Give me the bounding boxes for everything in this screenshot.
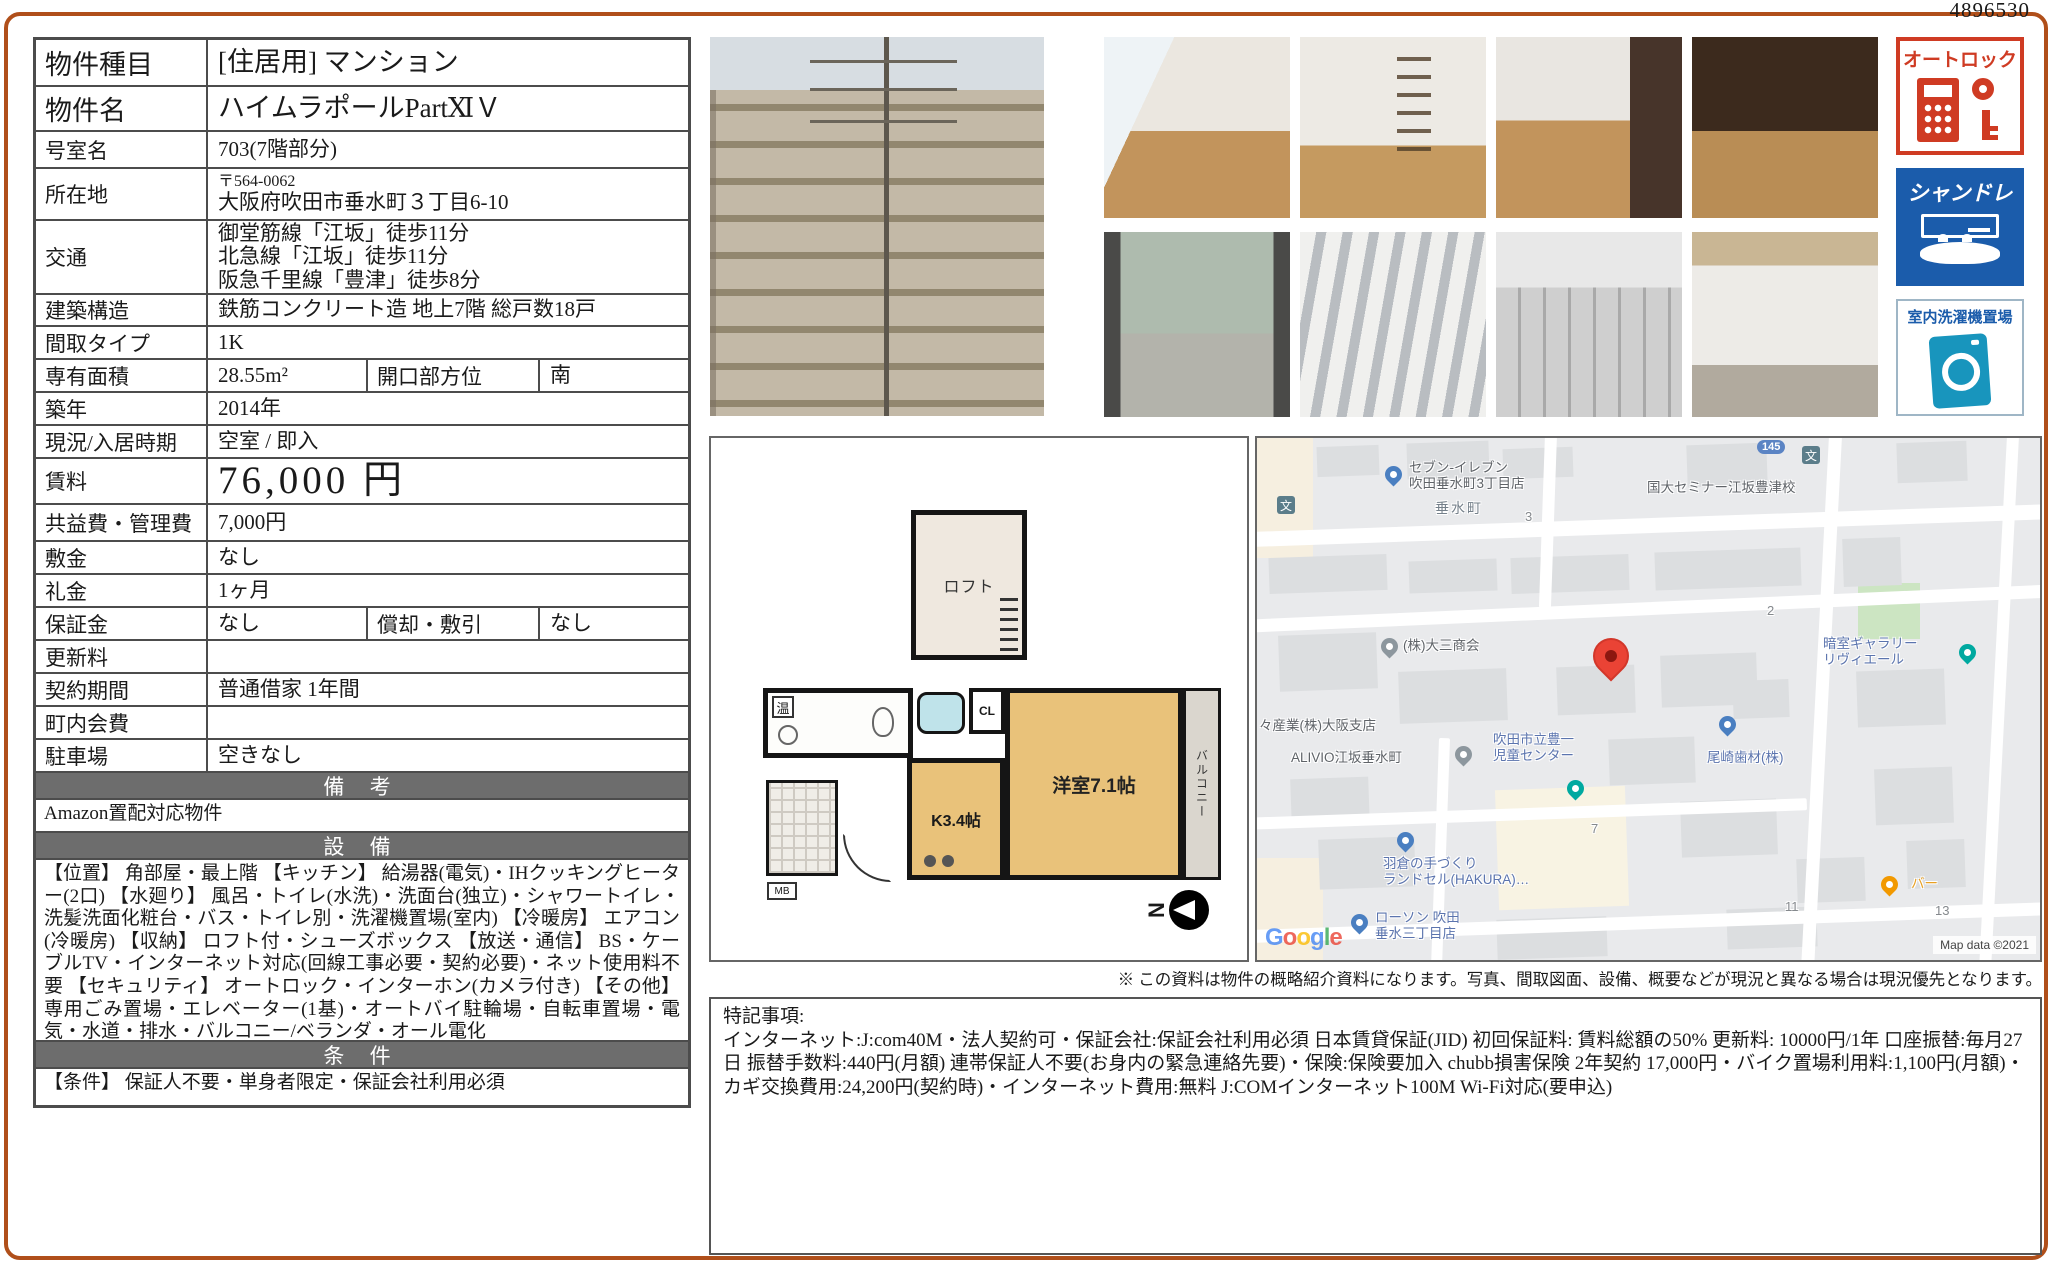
remarks-body: インターネット:J:com40M・法人契約可・保証会社:保証会社利用必須 日本賃… (723, 1029, 2028, 1100)
map-building (1268, 554, 1387, 594)
row-value-2: なし (540, 608, 688, 639)
row-label: 築年 (36, 393, 208, 424)
floorplan-kitchen: K3.4帖 (907, 758, 1005, 880)
map-copyright: Map data ©2021 (1933, 936, 2036, 954)
map-poi-label: 々産業(株)大阪支店 (1259, 718, 1376, 734)
section-body: Amazon置配対応物件 (36, 798, 688, 831)
section-header: 条 件 (36, 1040, 688, 1067)
map-poi-pin (1955, 640, 1979, 664)
map-poi-label: ローソン 吹田 垂水三丁目店 (1375, 910, 1460, 941)
table-row: 賃料76,000 円 (36, 457, 688, 503)
row-value (208, 641, 688, 672)
row-value: なし (208, 608, 368, 639)
row-label: 号室名 (36, 132, 208, 167)
remarks-title: 特記事項: (723, 1005, 2028, 1029)
map-poi-pin (1877, 872, 1901, 896)
map-route-badge: 145 (1757, 440, 1785, 454)
table-row: 交通御堂筋線「江坂」徒歩11分北急線「江坂」徒歩11分阪急千里線「豊津」徒歩8分 (36, 219, 688, 293)
row-label: 賃料 (36, 459, 208, 503)
map-poi-label: バー (1911, 876, 1938, 892)
google-logo: Google (1265, 924, 1342, 952)
table-row: 建築構造鉄筋コンクリート造 地上7階 総戸数18戸 (36, 293, 688, 325)
special-remarks-box: 特記事項: インターネット:J:com40M・法人契約可・保証会社:保証会社利用… (709, 997, 2042, 1255)
washing-machine-icon (1929, 333, 1992, 409)
row-label: 物件種目 (36, 40, 208, 85)
photo-common-corridor (1692, 232, 1878, 417)
section-header: 設 備 (36, 831, 688, 858)
map-building (1510, 554, 1629, 594)
badge-shampoo-dresser-label: シャンドレ (1899, 177, 2021, 207)
floorplan-entrance-door-arc (843, 834, 891, 882)
row-label: 契約期間 (36, 674, 208, 705)
photo-entrance-mailboxes (1496, 232, 1682, 417)
map-poi-label: 2 (1767, 604, 1774, 619)
map-poi-label: 3 (1525, 510, 1532, 525)
photo-interior-kitchen (1692, 37, 1878, 218)
floorplan-balcony: バルコニー (1183, 688, 1221, 880)
property-table: 物件種目[住居用] マンション物件名ハイムラポールPartⅪＶ号室名703(7階… (33, 37, 691, 1108)
row-label: 交通 (36, 221, 208, 293)
badge-autolock-label: オートロック (1900, 45, 2020, 72)
table-row: 築年2014年 (36, 391, 688, 424)
table-row: 礼金1ヶ月 (36, 573, 688, 606)
row-value: 7,000円 (208, 505, 688, 540)
map-building (1408, 558, 1497, 593)
table-row: 現況/入居時期空室 / 即入 (36, 424, 688, 457)
map-building (1732, 679, 1789, 719)
map-poi-label: 7 (1591, 822, 1598, 837)
row-value: 2014年 (208, 393, 688, 424)
table-row: 号室名703(7階部分) (36, 130, 688, 167)
map-disclaimer-note: ※ この資料は物件の概略紹介資料になります。写真、間取図面、設備、概要などが現況… (709, 966, 2042, 990)
map-building (1278, 632, 1378, 691)
map-poi-pin (1377, 634, 1401, 658)
row-value: 普通借家 1年間 (208, 674, 688, 705)
row-label: 専有面積 (36, 360, 208, 391)
row-label: 物件名 (36, 87, 208, 130)
row-value: 703(7階部分) (208, 132, 688, 167)
table-row: 保証金なし償却・敷引なし (36, 606, 688, 639)
table-row: 所在地〒564-0062大阪府吹田市垂水町３丁目6-10 (36, 167, 688, 219)
map-poi-label: セブン-イレブン 吹田垂水町3丁目店 (1409, 460, 1525, 491)
row-value: 空室 / 即入 (208, 426, 688, 457)
row-label: 敷金 (36, 542, 208, 573)
badge-indoor-laundry-label: 室内洗濯機置場 (1898, 306, 2022, 327)
washbasin-icon (1920, 242, 2000, 264)
map-school-icon: 文 (1802, 446, 1820, 464)
row-value: 76,000 円 (208, 459, 688, 503)
mirror-cabinet-icon (1921, 214, 1999, 238)
row-label-2: 償却・敷引 (368, 608, 540, 639)
row-label: 保証金 (36, 608, 208, 639)
row-value (208, 707, 688, 738)
row-value: 〒564-0062大阪府吹田市垂水町３丁目6-10 (208, 169, 688, 219)
table-row: 敷金なし (36, 540, 688, 573)
floorplan-laundry-space (766, 780, 838, 876)
floorplan-western-room: 洋室7.1帖 (1005, 688, 1183, 880)
section-body: 【条件】 保証人不要・単身者限定・保証会社利用必須 (36, 1067, 688, 1105)
row-label: 所在地 (36, 169, 208, 219)
photo-building-corridor (1300, 232, 1486, 417)
table-row: 共益費・管理費7,000円 (36, 503, 688, 540)
row-label: 建築構造 (36, 295, 208, 325)
map-poi-pin (1381, 462, 1405, 486)
map-poi-label: 垂水町 (1435, 500, 1483, 516)
map-poi-label: (株)大三商会 (1403, 638, 1480, 654)
map-building (1316, 445, 1379, 477)
section-header: 備 考 (36, 771, 688, 798)
row-value: [住居用] マンション (208, 40, 688, 85)
floorplan-closet: CL (969, 688, 1005, 734)
map-poi-label: 尾崎歯材(株) (1707, 750, 1784, 766)
table-row: 専有面積28.55m²開口部方位南 (36, 358, 688, 391)
table-row: 契約期間普通借家 1年間 (36, 672, 688, 705)
map-poi-label: 国大セミナー江坂豊津校 (1647, 480, 1796, 496)
table-row: 間取タイプ1K (36, 325, 688, 358)
table-row: 物件名ハイムラポールPartⅪＶ (36, 85, 688, 130)
map-building (1842, 537, 1902, 587)
map-building (1654, 547, 1801, 590)
table-row: 更新料 (36, 639, 688, 672)
map-poi-label: 暗室ギャラリー リヴィエール (1823, 636, 1918, 667)
floorplan-bathroom: 温 (763, 688, 913, 758)
map-poi-label: 13 (1935, 904, 1949, 919)
document-number: 4896530 (1950, 0, 2031, 23)
floorplan-meter-box: MB (767, 882, 797, 900)
map-poi-label: 11 (1785, 900, 1799, 915)
badge-autolock: オートロック (1896, 37, 2024, 155)
row-label: 間取タイプ (36, 327, 208, 358)
location-map: セブン-イレブン 吹田垂水町3丁目店垂水町3国大セミナー江坂豊津校145文文2(… (1255, 436, 2042, 962)
row-label: 共益費・管理費 (36, 505, 208, 540)
badge-shampoo-dresser: シャンドレ (1896, 168, 2024, 286)
map-poi-pin (1451, 742, 1475, 766)
row-value: なし (208, 542, 688, 573)
map-road (1255, 584, 2042, 632)
row-label: 駐車場 (36, 740, 208, 771)
map-road (1255, 504, 2042, 547)
key-icon (1967, 78, 2003, 142)
map-building (1556, 665, 1636, 716)
photo-balcony-view (1104, 232, 1290, 417)
table-row: 駐車場空きなし (36, 738, 688, 771)
map-poi-label: 吹田市立豊一 児童センター (1493, 732, 1574, 763)
photo-interior-loft-ladder (1300, 37, 1486, 218)
row-label: 現況/入居時期 (36, 426, 208, 457)
map-building (1874, 767, 1954, 826)
intercom-panel-icon (1917, 78, 1959, 142)
table-row: 町内会費 (36, 705, 688, 738)
north-compass-icon: N (1149, 890, 1209, 930)
row-label-2: 開口部方位 (368, 360, 540, 391)
autolock-icon (1900, 78, 2020, 142)
map-poi-label: 羽倉の手づくり ランドセル(HAKURA)… (1383, 856, 1529, 887)
section-body: 【位置】 角部屋・最上階 【キッチン】 給湯器(電気)・IHクッキングヒーター(… (36, 858, 688, 1040)
row-label: 町内会費 (36, 707, 208, 738)
table-row: 物件種目[住居用] マンション (36, 40, 688, 85)
floor-plan: ロフト 温 CL 洋室7.1帖 バルコニー K3.4帖 MB N (709, 436, 1249, 962)
floorplan-bathtub (917, 692, 965, 734)
map-building (1856, 668, 1946, 727)
row-value: 鉄筋コンクリート造 地上7階 総戸数18戸 (208, 295, 688, 325)
row-value: 空きなし (208, 740, 688, 771)
map-school-icon: 文 (1277, 496, 1295, 514)
row-value-2: 南 (540, 360, 688, 391)
row-label: 更新料 (36, 641, 208, 672)
photo-interior-room-counter (1496, 37, 1682, 218)
row-value: 1K (208, 327, 688, 358)
building-exterior-photo (710, 37, 1044, 416)
row-value: 28.55m² (208, 360, 368, 391)
row-value: 1ヶ月 (208, 575, 688, 606)
floorplan-bath-label: 温 (772, 696, 794, 718)
map-building (1608, 737, 1696, 786)
row-label: 礼金 (36, 575, 208, 606)
floorplan-loft: ロフト (911, 510, 1027, 660)
map-building (1896, 441, 1967, 483)
map-building (1398, 668, 1508, 724)
map-poi-label: ALIVIO江坂垂水町 (1291, 750, 1402, 766)
row-value: 御堂筋線「江坂」徒歩11分北急線「江坂」徒歩11分阪急千里線「豊津」徒歩8分 (208, 221, 688, 293)
photo-interior-room-window (1104, 37, 1290, 218)
map-road (1255, 902, 2042, 943)
row-value: ハイムラポールPartⅪＶ (208, 87, 688, 130)
badge-indoor-laundry: 室内洗濯機置場 (1896, 299, 2024, 416)
property-flyer-page: 4896530 物件種目[住居用] マンション物件名ハイムラポールPartⅪＶ号… (0, 0, 2056, 1265)
